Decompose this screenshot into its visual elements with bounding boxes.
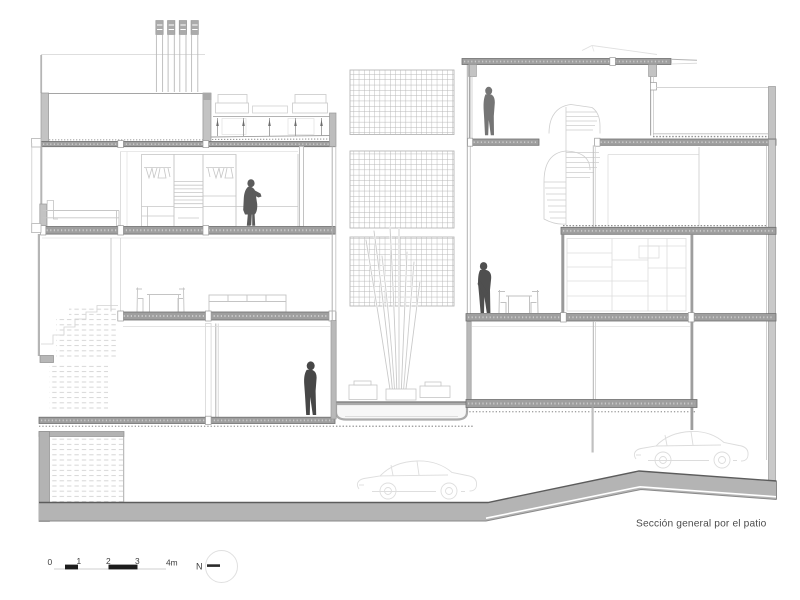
svg-text:0: 0 xyxy=(48,557,53,567)
svg-text:N: N xyxy=(196,562,203,572)
svg-text:1: 1 xyxy=(77,556,82,566)
svg-text:4m: 4m xyxy=(166,558,178,568)
svg-text:3: 3 xyxy=(135,556,140,566)
svg-text:Sección general por el patio: Sección general por el patio xyxy=(636,519,767,530)
svg-text:2: 2 xyxy=(106,556,111,566)
